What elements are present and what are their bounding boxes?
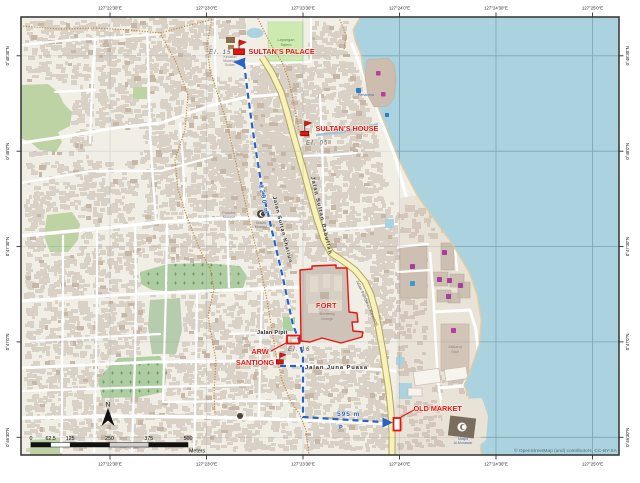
svg-text:127°24'0"E: 127°24'0"E <box>389 6 410 11</box>
svg-text:127°24'0"E: 127°24'0"E <box>389 462 410 467</box>
svg-text:0°46'30"N: 0°46'30"N <box>625 428 630 447</box>
svg-text:N: N <box>106 402 111 409</box>
svg-text:Mosque: Mosque <box>223 215 236 219</box>
svg-text:Al-Munawar: Al-Munawar <box>454 441 474 445</box>
svg-text:0°48'0"N: 0°48'0"N <box>5 143 10 160</box>
svg-text:0°47'30"N: 0°47'30"N <box>5 237 10 256</box>
svg-text:375: 375 <box>144 436 153 442</box>
svg-text:Oranje: Oranje <box>321 316 334 321</box>
svg-text:ARW: ARW <box>251 347 268 356</box>
svg-text:Sultan: Sultan <box>225 63 235 67</box>
svg-text:127°25'0"E: 127°25'0"E <box>582 6 603 11</box>
svg-text:127°22'30"E: 127°22'30"E <box>98 6 122 11</box>
svg-text:595 m: 595 m <box>337 411 360 418</box>
svg-text:0°47'0"N: 0°47'0"N <box>5 334 10 351</box>
svg-text:FORT: FORT <box>316 301 337 310</box>
svg-text:Mosque: Mosque <box>255 225 268 229</box>
svg-text:127°22'30"E: 127°22'30"E <box>98 462 122 467</box>
svg-text:127°23'30"E: 127°23'30"E <box>291 6 315 11</box>
svg-text:Pertamina: Pertamina <box>358 93 374 97</box>
svg-text:500: 500 <box>184 436 193 442</box>
svg-text:Jalan Pipit: Jalan Pipit <box>257 330 288 336</box>
svg-text:© OpenStreetMap (and) contribu: © OpenStreetMap (and) contributors, CC-B… <box>514 447 618 454</box>
svg-text:Lapangan: Lapangan <box>278 38 295 42</box>
svg-text:125: 125 <box>66 436 75 442</box>
svg-text:127°24'30"E: 127°24'30"E <box>484 462 508 467</box>
svg-text:El. 15: El. 15 <box>209 50 232 56</box>
svg-text:127°23'0"E: 127°23'0"E <box>196 462 217 467</box>
svg-text:Mall: Mall <box>451 349 458 354</box>
svg-text:El. 16: El. 16 <box>288 347 311 353</box>
svg-text:0°46'30"N: 0°46'30"N <box>5 428 10 447</box>
svg-text:0°47'0"N: 0°47'0"N <box>625 334 630 351</box>
svg-text:0°47'30"N: 0°47'30"N <box>625 237 630 256</box>
svg-text:SULTAN’S HOUSE: SULTAN’S HOUSE <box>316 124 379 133</box>
svg-text:250: 250 <box>105 436 114 442</box>
svg-text:0°48'30"N: 0°48'30"N <box>5 46 10 65</box>
svg-text:Jalan Juna Puasa: Jalan Juna Puasa <box>305 365 368 371</box>
svg-text:127°23'0"E: 127°23'0"E <box>196 6 217 11</box>
svg-text:SULTAN’S PALACE: SULTAN’S PALACE <box>249 47 315 56</box>
svg-text:127°24'30"E: 127°24'30"E <box>484 6 508 11</box>
svg-text:127°25'0"E: 127°25'0"E <box>582 462 603 467</box>
svg-text:P: P <box>339 425 343 431</box>
svg-text:El. 05: El. 05 <box>306 141 329 147</box>
svg-text:0: 0 <box>30 436 33 442</box>
svg-text:SANTIONG: SANTIONG <box>236 358 275 367</box>
svg-text:62.5: 62.5 <box>45 436 55 442</box>
svg-text:OLD MARKET: OLD MARKET <box>414 404 463 413</box>
svg-text:Meters: Meters <box>189 449 206 455</box>
svg-text:127°23'30"E: 127°23'30"E <box>291 462 315 467</box>
svg-text:0°48'0"N: 0°48'0"N <box>625 143 630 160</box>
svg-text:0°48'30"N: 0°48'30"N <box>625 46 630 65</box>
